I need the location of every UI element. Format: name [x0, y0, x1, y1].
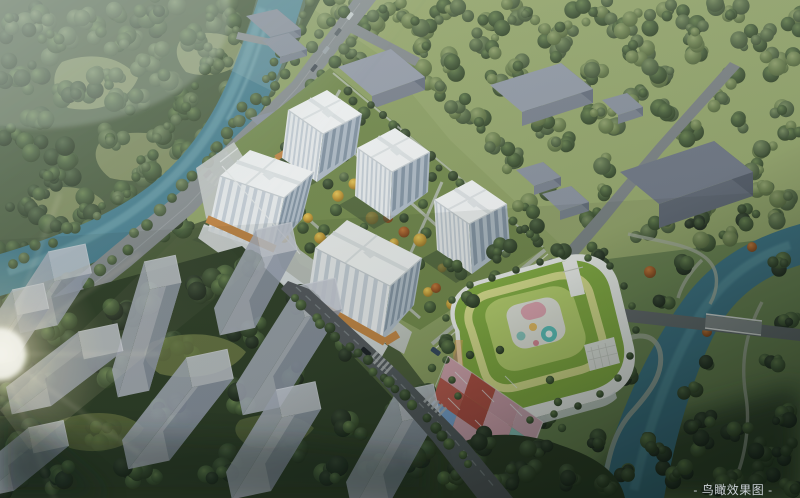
svg-text:- 鸟瞰效果图 -: - 鸟瞰效果图 -: [693, 482, 772, 497]
